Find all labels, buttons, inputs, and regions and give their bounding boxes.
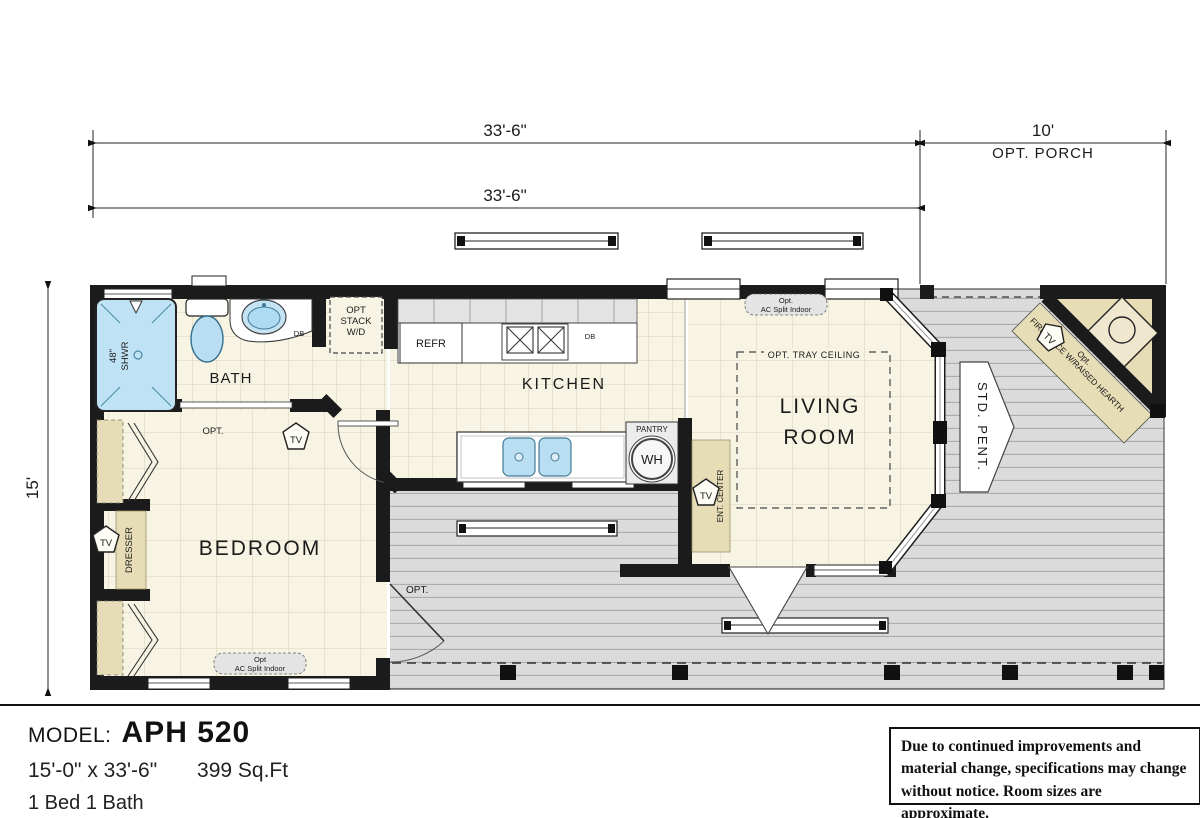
- model-label: MODEL:: [28, 724, 112, 748]
- toilet: [191, 316, 223, 362]
- opt-deck-door-label: OPT.: [406, 585, 428, 596]
- divider-line: [0, 704, 1200, 706]
- disclaimer-box: Due to continued improvements and materi…: [889, 727, 1200, 805]
- wd-label-1: OPT: [346, 305, 366, 316]
- floorplan-svg: 33'-6" 33'-6" 10' OPT. PORCH 15': [0, 0, 1200, 706]
- model-sqft: 399 Sq.Ft: [197, 759, 288, 782]
- room-label-living-1: LIVING: [780, 395, 861, 418]
- dim-width-inner: 33'-6": [483, 186, 526, 205]
- wd-label-3: W/D: [347, 327, 366, 338]
- footer: MODEL: APH 520 15'-0" x 33'-6" 399 Sq.Ft…: [28, 716, 288, 815]
- tray-ceiling-label: OPT. TRAY CEILING: [768, 350, 861, 360]
- model-size: 15'-0" x 33'-6": [28, 759, 157, 782]
- dresser-label: DRESSER: [124, 527, 135, 573]
- room-label-kitchen: KITCHEN: [522, 376, 606, 393]
- wh-label: WH: [641, 452, 663, 467]
- floorplan-page: 33'-6" 33'-6" 10' OPT. PORCH 15': [0, 0, 1200, 818]
- shower-size-label: 48": [108, 349, 119, 363]
- dim-porch-width: 10': [1032, 121, 1054, 140]
- toilet-tank: [186, 299, 228, 316]
- shower-label: SHWR: [120, 341, 131, 370]
- db-kitchen-label: DB: [585, 332, 595, 341]
- opt-bath-door-label: OPT.: [202, 426, 223, 437]
- ac-bottom-label-2: AC Split Indoor: [235, 664, 286, 673]
- closet-top: [97, 420, 123, 503]
- label-opt-porch: OPT. PORCH: [992, 145, 1094, 162]
- room-label-bath: BATH: [210, 370, 253, 387]
- beds-baths: 1 Bed 1 Bath: [28, 792, 288, 815]
- size-line: 15'-0" x 33'-6" 399 Sq.Ft: [28, 759, 288, 783]
- model-name: APH 520: [122, 716, 251, 750]
- room-label-bedroom: BEDROOM: [199, 537, 322, 560]
- dim-width-top: 33'-6": [483, 121, 526, 140]
- std-pent-label: STD. PENT.: [975, 382, 990, 472]
- closet-bottom: [97, 601, 123, 675]
- refr-label: REFR: [416, 338, 446, 350]
- db-bath-label: DB: [294, 329, 304, 338]
- room-label-living-2: ROOM: [783, 426, 856, 449]
- dim-height-left: 15': [23, 477, 42, 499]
- wd-label-2: STACK: [341, 316, 373, 327]
- model-line: MODEL: APH 520: [28, 716, 288, 750]
- ac-top-label-1: Opt.: [779, 296, 793, 305]
- svg-text:TV: TV: [700, 491, 713, 502]
- svg-text:TV: TV: [290, 435, 303, 446]
- ac-top-label-2: AC Split Indoor: [761, 305, 812, 314]
- svg-text:TV: TV: [100, 538, 113, 549]
- clerestory-windows: [455, 233, 863, 249]
- pantry-label: PANTRY: [636, 425, 668, 434]
- ac-bottom-label-1: Opt: [254, 655, 267, 664]
